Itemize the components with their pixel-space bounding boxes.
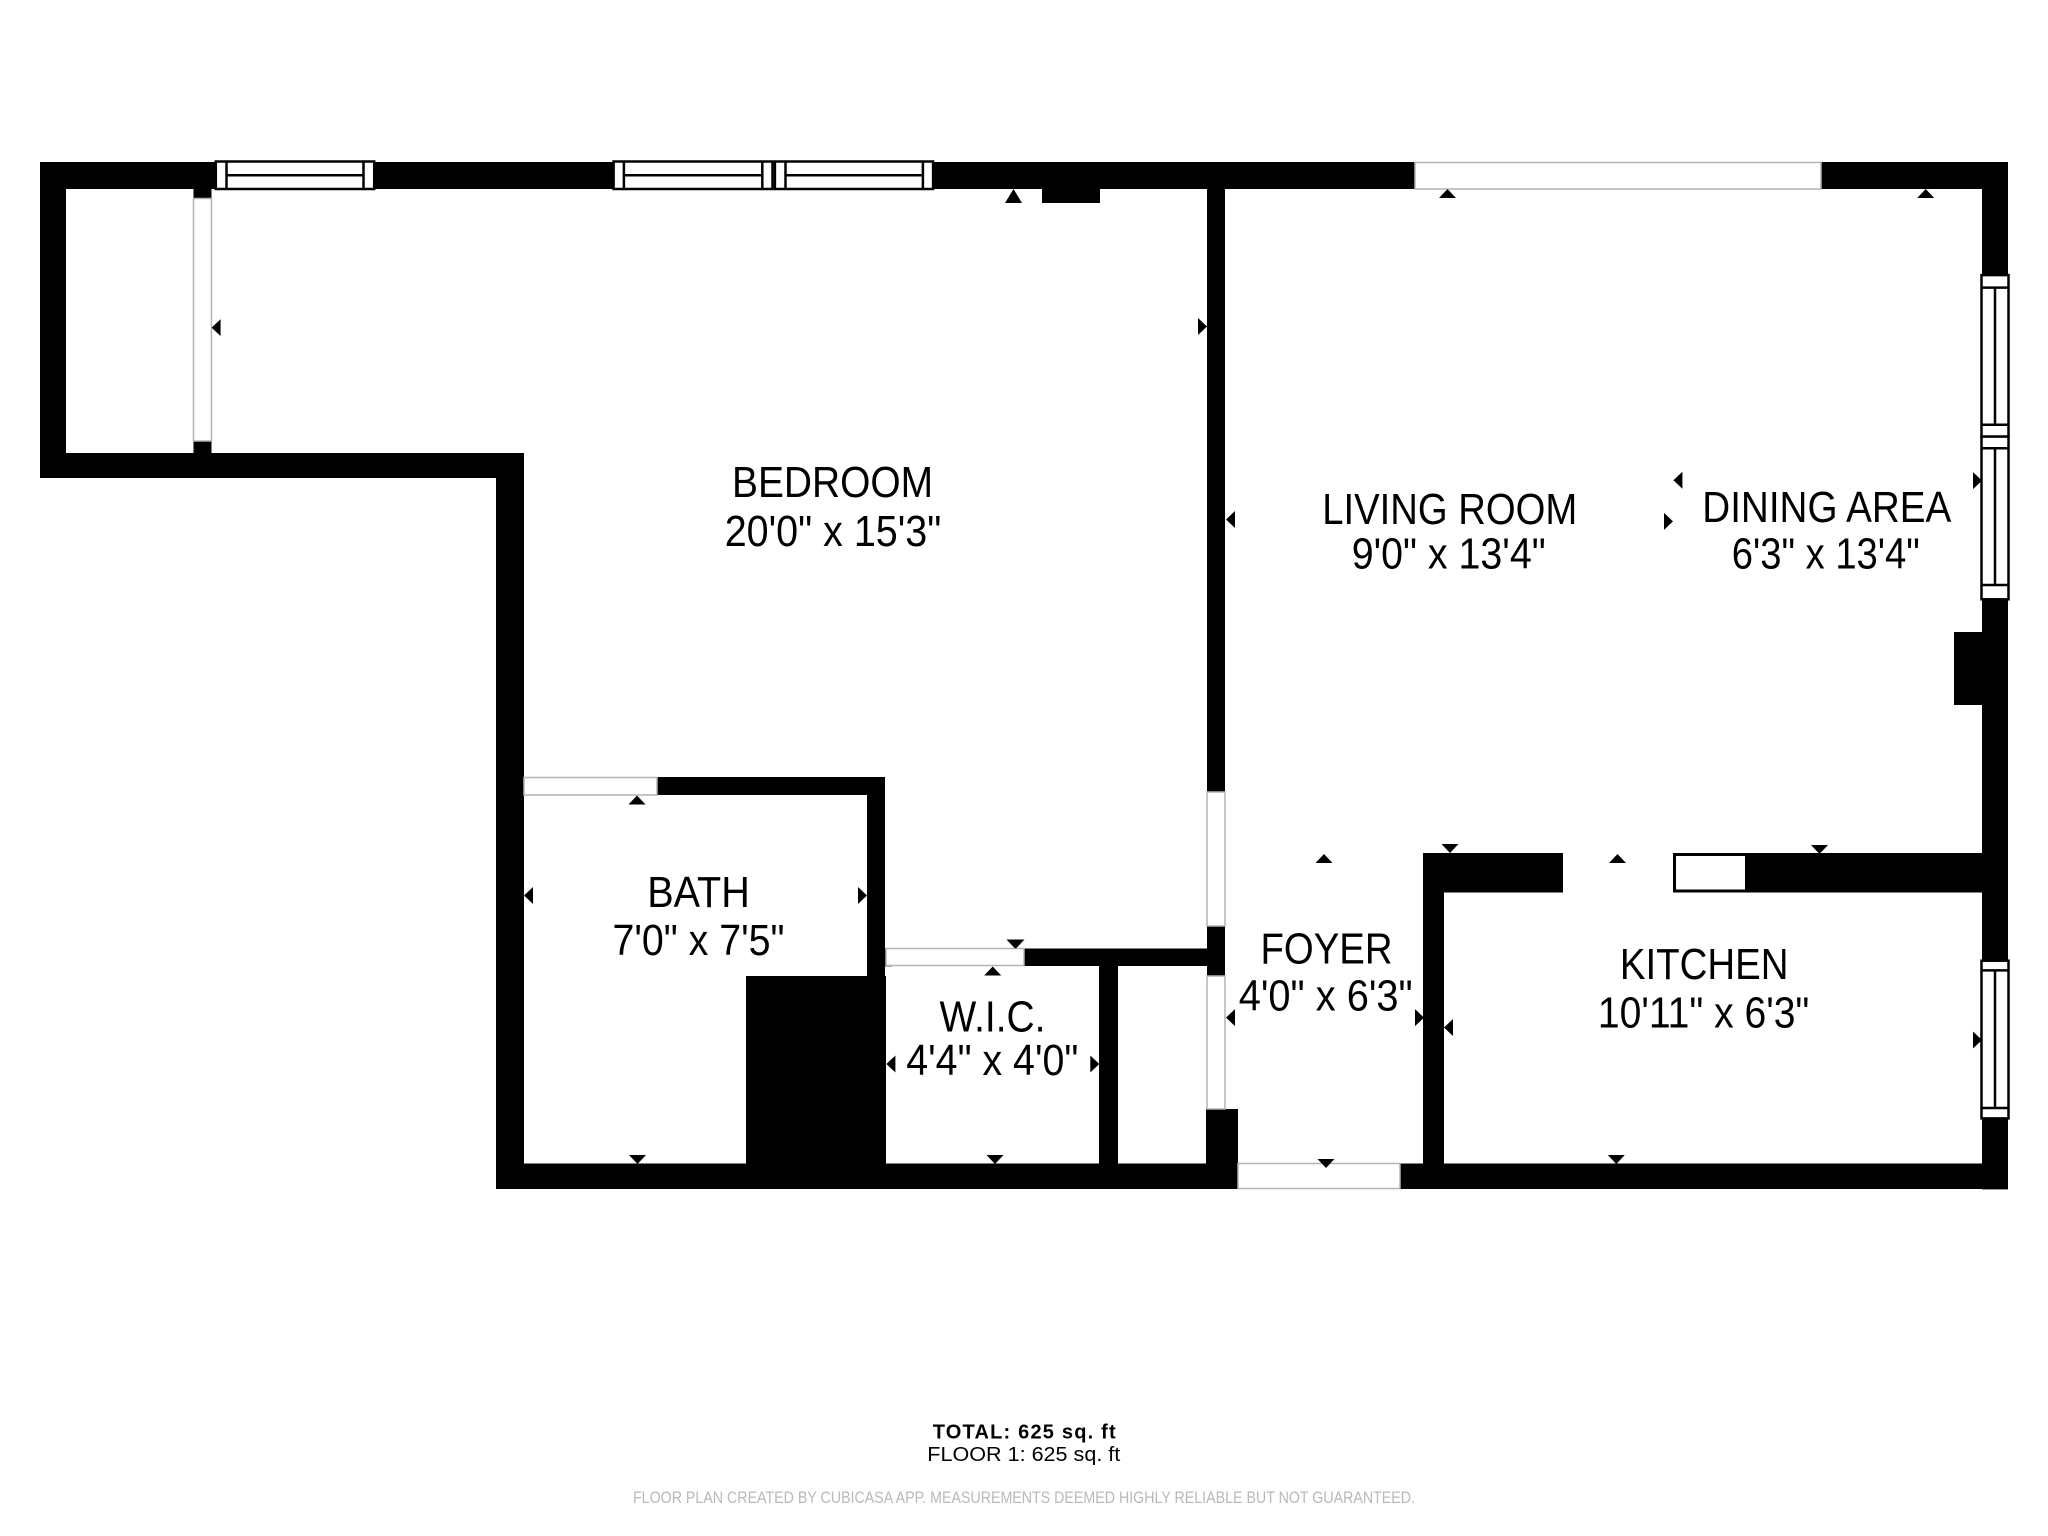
svg-text:W.I.C.: W.I.C. — [940, 993, 1046, 1042]
svg-text:9'0" x 13'4": 9'0" x 13'4" — [1352, 530, 1546, 579]
svg-text:6'3" x 13'4": 6'3" x 13'4" — [1732, 530, 1920, 579]
svg-text:20'0" x 15'3": 20'0" x 15'3" — [725, 507, 942, 556]
svg-text:TOTAL: 625 sq. ft: TOTAL: 625 sq. ft — [933, 1421, 1117, 1443]
svg-text:4'0" x 6'3": 4'0" x 6'3" — [1239, 972, 1413, 1021]
svg-text:FLOOR 1: 625 sq. ft: FLOOR 1: 625 sq. ft — [927, 1444, 1120, 1466]
svg-text:BEDROOM: BEDROOM — [732, 458, 933, 507]
svg-text:FOYER: FOYER — [1261, 925, 1393, 974]
svg-text:DINING AREA: DINING AREA — [1702, 483, 1952, 532]
svg-text:4'4" x 4'0": 4'4" x 4'0" — [906, 1036, 1078, 1085]
svg-text:FLOOR PLAN CREATED BY CUBICASA: FLOOR PLAN CREATED BY CUBICASA APP. MEAS… — [633, 1488, 1415, 1507]
svg-text:7'0" x 7'5": 7'0" x 7'5" — [613, 916, 785, 965]
svg-text:LIVING ROOM: LIVING ROOM — [1322, 485, 1577, 534]
svg-text:10'11" x 6'3": 10'11" x 6'3" — [1598, 989, 1809, 1038]
svg-text:BATH: BATH — [647, 868, 750, 917]
svg-text:KITCHEN: KITCHEN — [1620, 940, 1789, 989]
